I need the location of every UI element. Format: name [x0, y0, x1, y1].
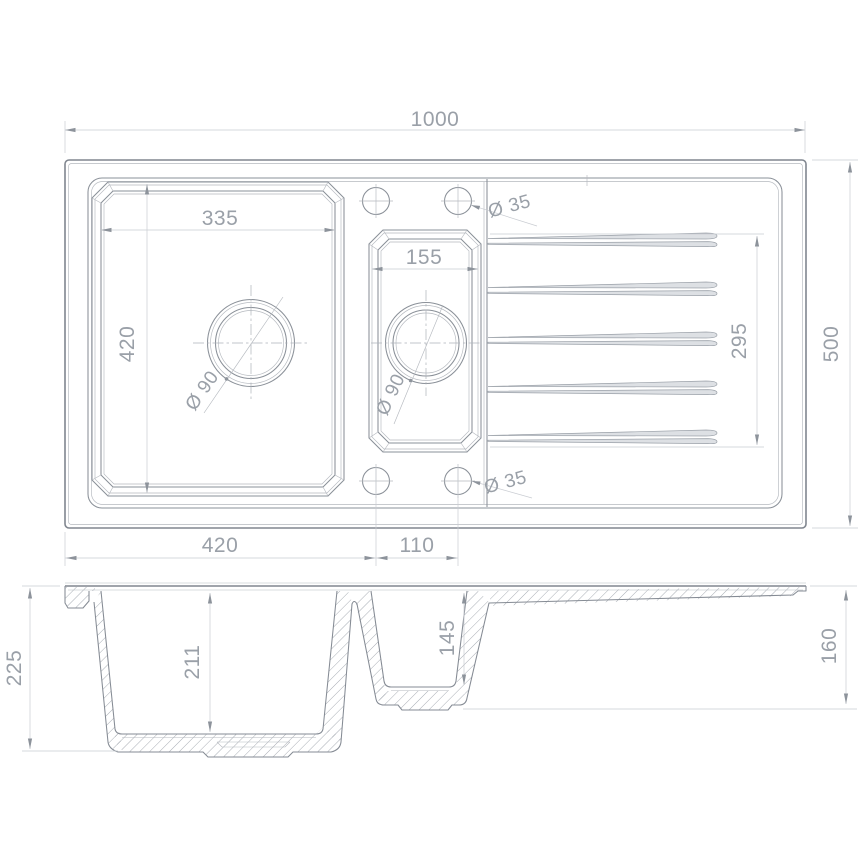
main-bowl-profile [101, 591, 337, 734]
dim-overall-height: 225 [3, 650, 26, 687]
section-dimensions: 225 211 145 160 [3, 586, 857, 751]
plan-view [65, 160, 806, 528]
leader-dot [409, 379, 413, 383]
dim-main-bowl-width: 335 [202, 207, 239, 230]
section-view [65, 583, 806, 757]
dim-main-bowl-depth: 211 [181, 645, 204, 680]
technical-drawing-page: 1000 500 335 420 155 295 Ø 90 Ø 90 Ø 35 … [0, 0, 868, 868]
dim-overall-depth: 500 [820, 326, 843, 363]
dim-drainer-groove-length: 295 [728, 323, 751, 360]
dim-main-bowl-length: 420 [116, 326, 139, 363]
dim-tap-hole-spacing: 110 [400, 534, 435, 557]
dim-overall-width: 1000 [411, 108, 460, 131]
sink-technical-drawing: 1000 500 335 420 155 295 Ø 90 Ø 90 Ø 35 … [0, 0, 868, 868]
dim-drainer-edge-height: 160 [818, 628, 841, 665]
dim-small-bowl-depth: 145 [436, 620, 459, 657]
dim-small-bowl-width: 155 [406, 246, 443, 269]
leader-dot [225, 377, 229, 381]
dim-tap-hole-offset: 420 [202, 534, 239, 557]
